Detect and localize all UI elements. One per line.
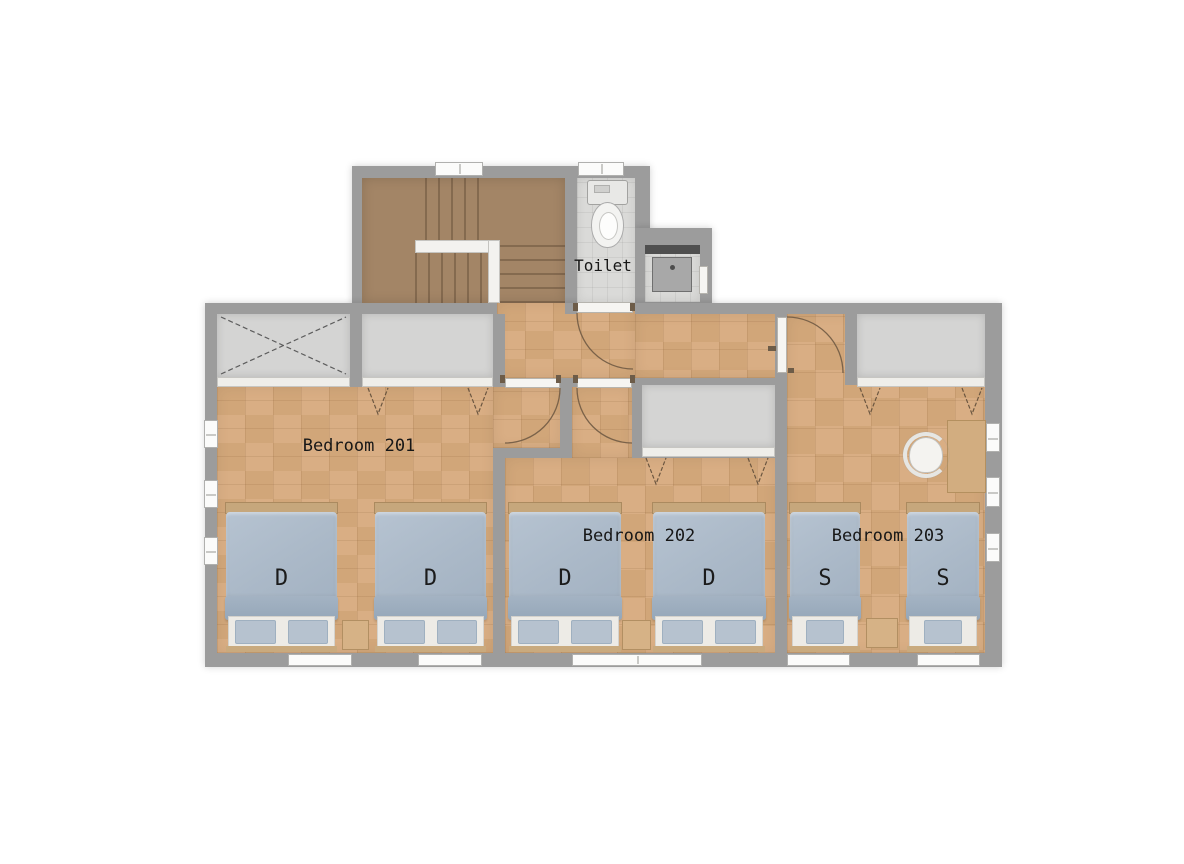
toilet-seat — [599, 212, 618, 240]
door-latch-mark — [768, 346, 776, 351]
bed-double: D — [652, 502, 766, 652]
wall-patch — [635, 303, 650, 314]
nightstand — [622, 620, 651, 650]
bed-size-label: D — [225, 566, 338, 591]
bed-double: D — [508, 502, 622, 652]
closet-divider-wall — [350, 314, 362, 387]
window-mullion — [206, 434, 216, 436]
closet-door-sill — [642, 447, 775, 457]
bed-footboard — [375, 646, 486, 652]
bedroom-203-label: Bedroom 203 — [808, 526, 968, 546]
door-hinge-mark — [788, 368, 794, 373]
toilet-label: Toilet — [566, 256, 640, 276]
bed-pillow — [662, 620, 703, 644]
laundry-counter — [645, 245, 700, 254]
stair-flight-exit — [500, 240, 565, 303]
bedroom-201-label: Bedroom 201 — [279, 436, 439, 456]
bed-pillow — [235, 620, 276, 644]
window-mullion — [206, 551, 216, 553]
bed-pillow — [518, 620, 559, 644]
nightstand — [866, 618, 898, 648]
bed-pillow — [437, 620, 478, 644]
door-hinge-mark — [630, 303, 635, 311]
bed-pillow — [715, 620, 756, 644]
bed-footboard — [790, 646, 860, 652]
window — [288, 654, 352, 666]
bed-pillow — [806, 620, 844, 644]
stair-flight-middle — [415, 253, 483, 303]
closet-bedroom202 — [642, 385, 775, 447]
window — [986, 533, 1000, 562]
bed-size-label: D — [374, 566, 487, 591]
bed-double: D — [374, 502, 487, 652]
bed-footboard — [653, 646, 765, 652]
closet-bedroom202-wall — [642, 378, 775, 385]
bed-pillow — [384, 620, 425, 644]
toilet-door-leaf — [577, 302, 633, 313]
washer-control-dial — [670, 265, 675, 270]
window — [204, 480, 218, 508]
window — [204, 420, 218, 448]
closet-bedroom202-wall — [632, 378, 642, 457]
laundry-fixture — [699, 266, 708, 294]
bed-footboard — [907, 646, 979, 652]
wall-bedroom201-202 — [493, 448, 572, 458]
stair-handrail — [488, 240, 500, 303]
door-hinge-mark — [630, 375, 635, 383]
bed-single: S — [906, 502, 980, 652]
wall-bedroom201-202 — [493, 458, 505, 653]
window-mullion — [459, 164, 461, 174]
window-mullion — [637, 656, 639, 664]
closet-door-sill — [217, 377, 350, 387]
window — [435, 162, 483, 176]
closet-bedroom201-right — [362, 314, 493, 377]
bedroom-202-label: Bedroom 202 — [559, 526, 719, 546]
desk — [947, 420, 986, 493]
door-latch-mark — [556, 375, 561, 383]
toilet-bowl — [591, 202, 624, 248]
bed-size-label: D — [508, 566, 622, 591]
bed-size-label: S — [789, 566, 861, 591]
closet-door-sill — [857, 377, 985, 387]
bed-pillow — [924, 620, 962, 644]
washing-machine — [652, 257, 692, 292]
bed-footboard — [509, 646, 621, 652]
bedroom-201-entry-floor — [493, 387, 560, 448]
door-latch-mark — [573, 303, 578, 311]
bed-single: S — [789, 502, 861, 652]
chair-seat — [909, 437, 943, 473]
window-mullion — [988, 548, 998, 550]
desk-chair — [903, 432, 949, 478]
bed-footboard — [226, 646, 337, 652]
bed-size-label: D — [652, 566, 766, 591]
bed-double: D — [225, 502, 338, 652]
window — [204, 537, 218, 565]
window — [418, 654, 482, 666]
window-mullion — [601, 164, 603, 174]
stair-handrail — [415, 240, 498, 253]
bedroom-202-door-leaf — [577, 378, 632, 388]
window-mullion — [988, 438, 998, 440]
window — [917, 654, 980, 666]
hallway-floor — [497, 303, 635, 378]
floor-plan: D D D D S — [0, 0, 1184, 864]
window — [572, 654, 702, 666]
bedroom-201-door-leaf — [505, 378, 560, 388]
door-hinge-mark — [500, 375, 505, 383]
closet-bedroom203-wall — [845, 314, 857, 385]
window — [578, 162, 624, 176]
closet-bedroom203 — [857, 314, 985, 377]
bed-pillow — [288, 620, 329, 644]
bed-pillow — [571, 620, 612, 644]
window — [787, 654, 850, 666]
window-mullion — [988, 492, 998, 494]
door-latch-mark — [573, 375, 578, 383]
closet-bedroom201-left — [217, 314, 350, 377]
stair-flight-upper — [425, 178, 483, 240]
window-mullion — [206, 494, 216, 496]
toilet-flush-button — [594, 185, 610, 193]
window — [986, 477, 1000, 507]
bedroom-203-door-leaf — [777, 317, 787, 373]
closet-door-sill — [362, 377, 493, 387]
bedroom-202-entry-floor — [572, 387, 632, 458]
wall-bedroom201-202 — [560, 378, 572, 458]
nightstand — [342, 620, 369, 650]
window — [986, 423, 1000, 452]
bed-size-label: S — [906, 566, 980, 591]
